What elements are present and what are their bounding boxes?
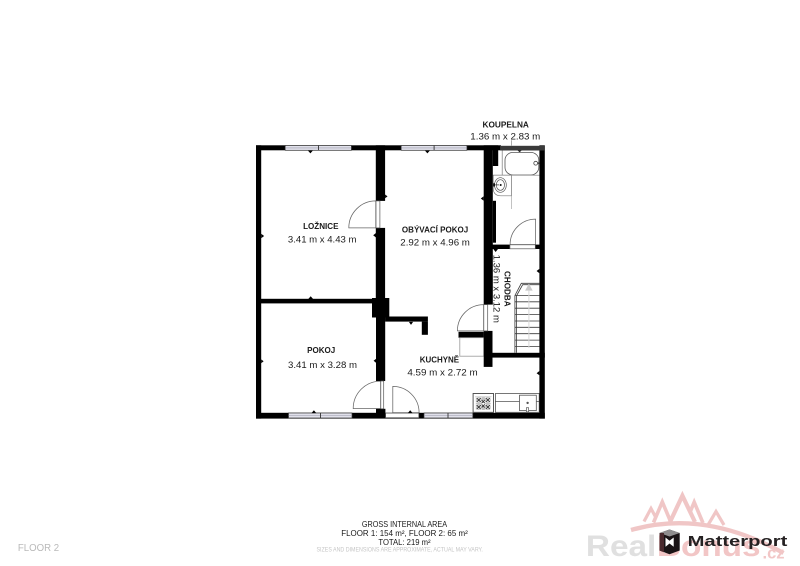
svg-text:KUCHYNĚ: KUCHYNĚ (420, 356, 460, 365)
svg-text:POKOJ: POKOJ (307, 346, 335, 355)
svg-text:1.36 m x 3.12 m: 1.36 m x 3.12 m (491, 255, 502, 323)
svg-text:Matterport: Matterport (688, 533, 788, 550)
svg-text:OBÝVACÍ POKOJ: OBÝVACÍ POKOJ (402, 225, 468, 234)
svg-text:CHODBA: CHODBA (502, 271, 511, 307)
svg-text:3.41 m x 4.43 m: 3.41 m x 4.43 m (288, 235, 357, 246)
svg-text:LOŽNICE: LOŽNICE (303, 222, 339, 231)
svg-text:2.92 m x 4.96 m: 2.92 m x 4.96 m (400, 238, 470, 249)
svg-text:Real: Real (586, 530, 656, 563)
svg-text:FLOOR 1: 154 m², FLOOR 2: 65 m: FLOOR 1: 154 m², FLOOR 2: 65 m² (341, 529, 468, 538)
svg-text:KOUPELNA: KOUPELNA (483, 120, 530, 129)
svg-text:3.41 m x 3.28 m: 3.41 m x 3.28 m (288, 360, 357, 371)
svg-text:4.59 m x 2.72 m: 4.59 m x 2.72 m (407, 368, 477, 379)
svg-text:1.36 m x 2.83 m: 1.36 m x 2.83 m (470, 131, 540, 142)
svg-text:FLOOR 2: FLOOR 2 (18, 543, 59, 554)
svg-text:SIZES AND DIMENSIONS ARE APPRO: SIZES AND DIMENSIONS ARE APPROXIMATE, AC… (317, 547, 484, 554)
svg-text:GROSS INTERNAL AREA: GROSS INTERNAL AREA (362, 520, 448, 529)
